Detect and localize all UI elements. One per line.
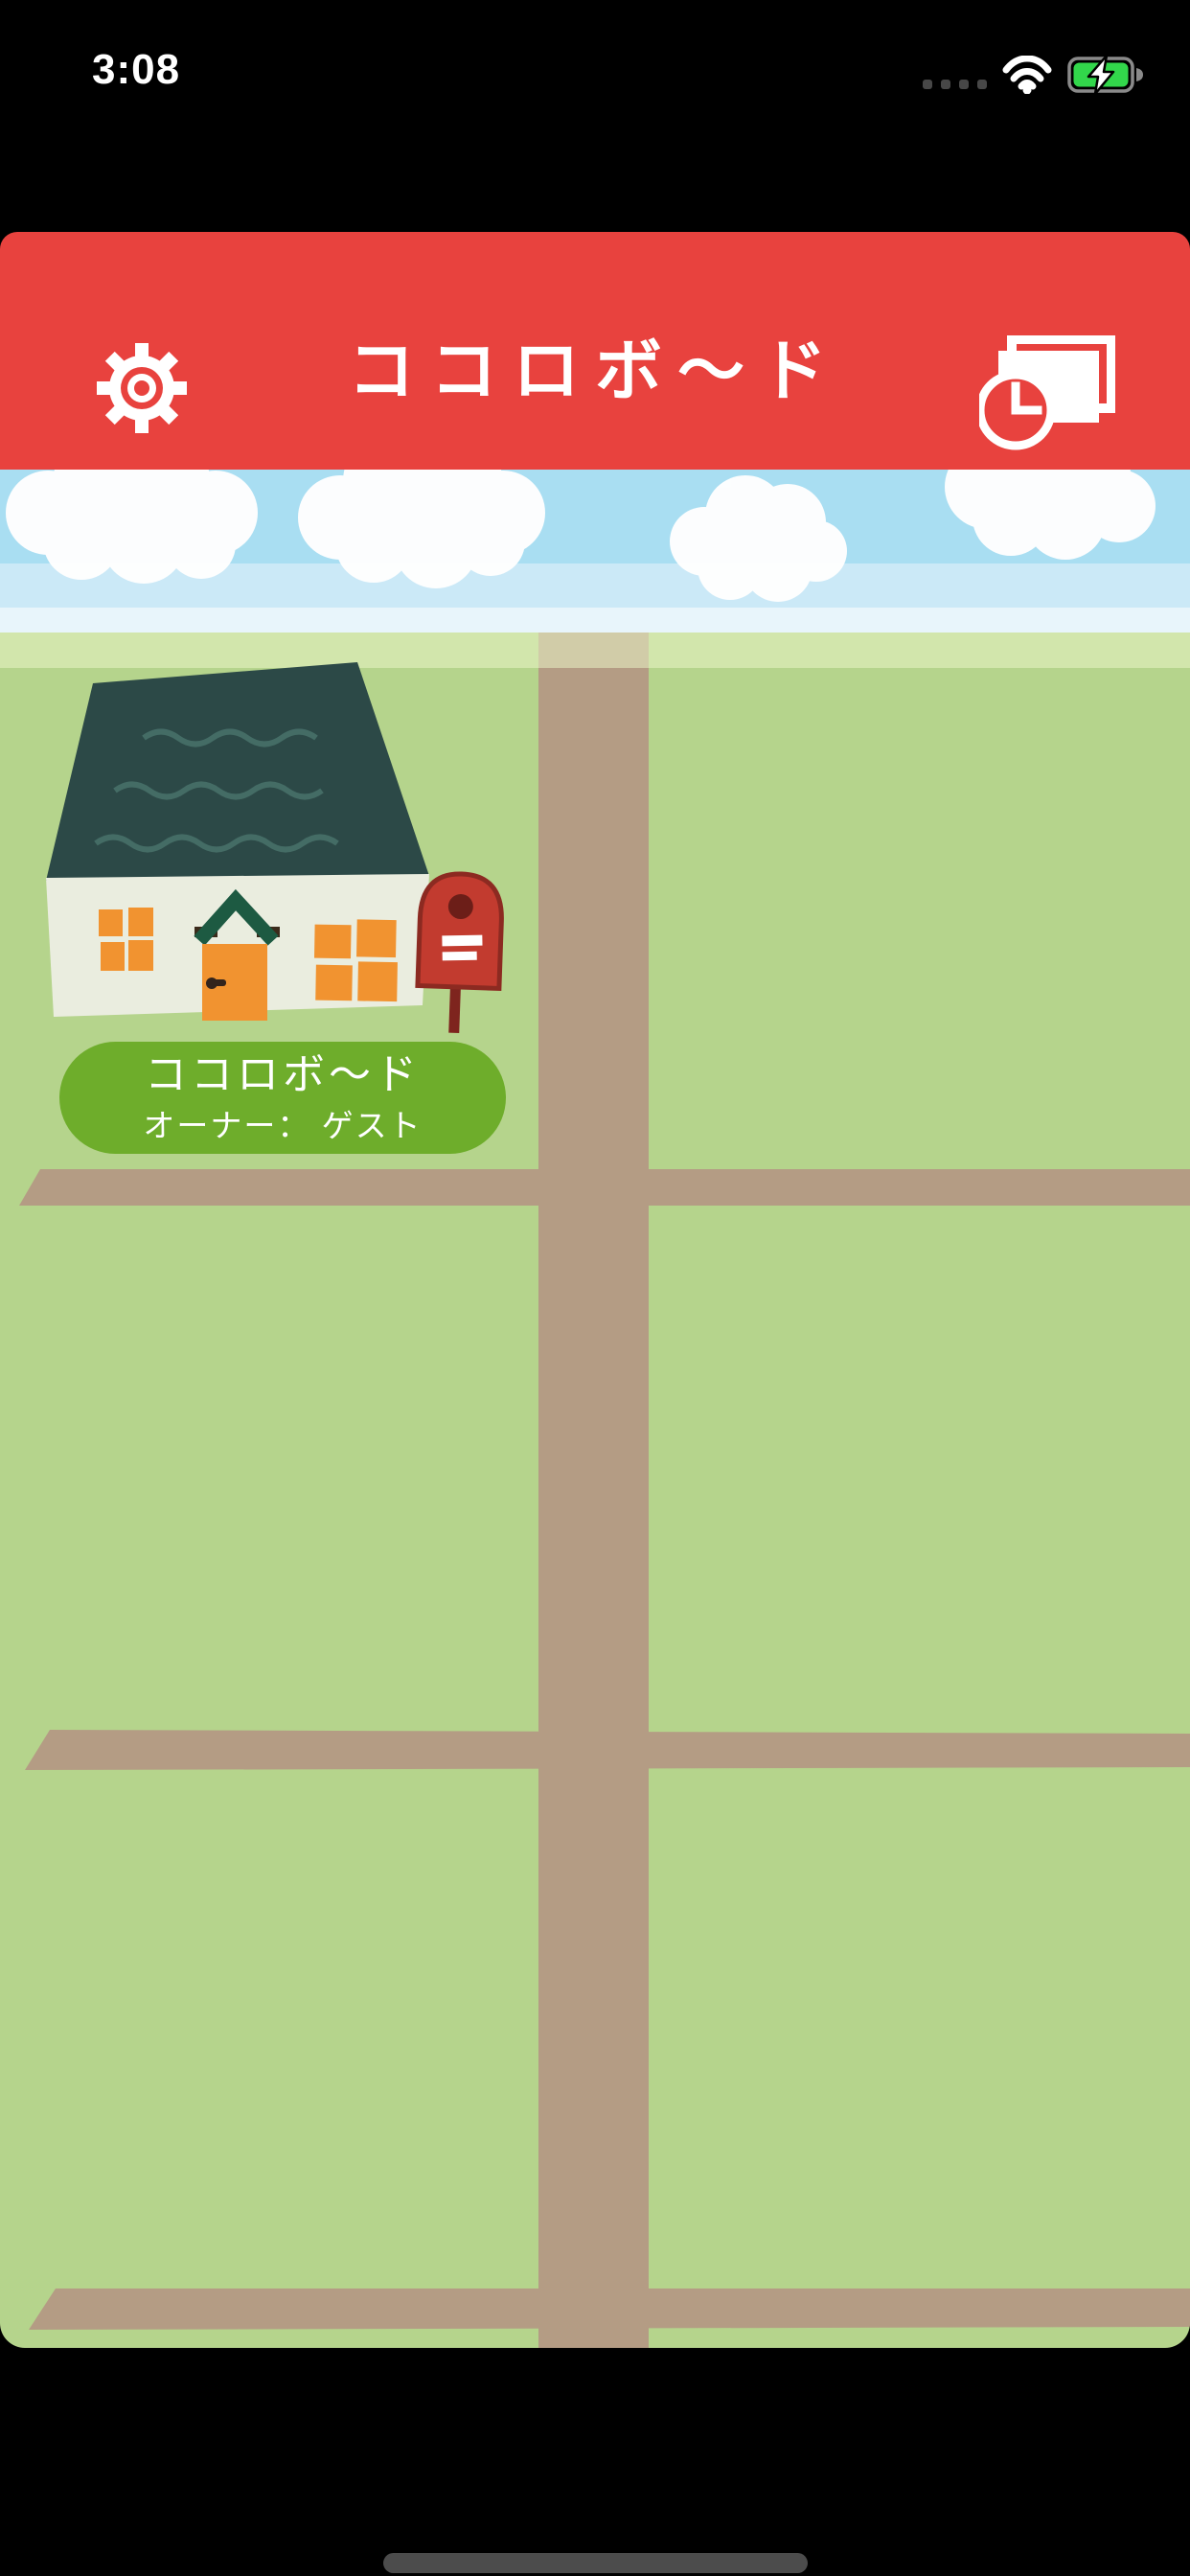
home-indicator[interactable] <box>383 2553 808 2573</box>
house-label[interactable]: ココロボ〜ド オーナー： ゲスト <box>59 1042 506 1154</box>
house-icon[interactable] <box>46 662 503 1034</box>
wifi-icon <box>1002 56 1052 94</box>
field-light-band <box>0 632 1190 668</box>
recent-boards-button[interactable] <box>979 335 1115 452</box>
mailbox-icon <box>416 873 503 1035</box>
house-label-title: ココロボ〜ド <box>145 1052 421 1098</box>
status-bar: 3:08 <box>0 0 1190 125</box>
map-area[interactable]: ココロボ〜ド オーナー： ゲスト <box>0 632 1190 2348</box>
house-roof <box>46 662 429 881</box>
cellular-dots-icon <box>923 80 987 89</box>
settings-button[interactable] <box>96 342 188 434</box>
status-icons <box>923 50 1144 94</box>
status-time: 3:08 <box>92 46 180 94</box>
gear-icon <box>97 343 187 433</box>
recent-boards-clock-icon <box>980 339 1111 446</box>
battery-charging-icon <box>1067 56 1144 94</box>
app-screen: 3:08 ココロボ〜ド <box>0 0 1190 2576</box>
house-label-owner: オーナー： ゲスト <box>143 1109 422 1143</box>
